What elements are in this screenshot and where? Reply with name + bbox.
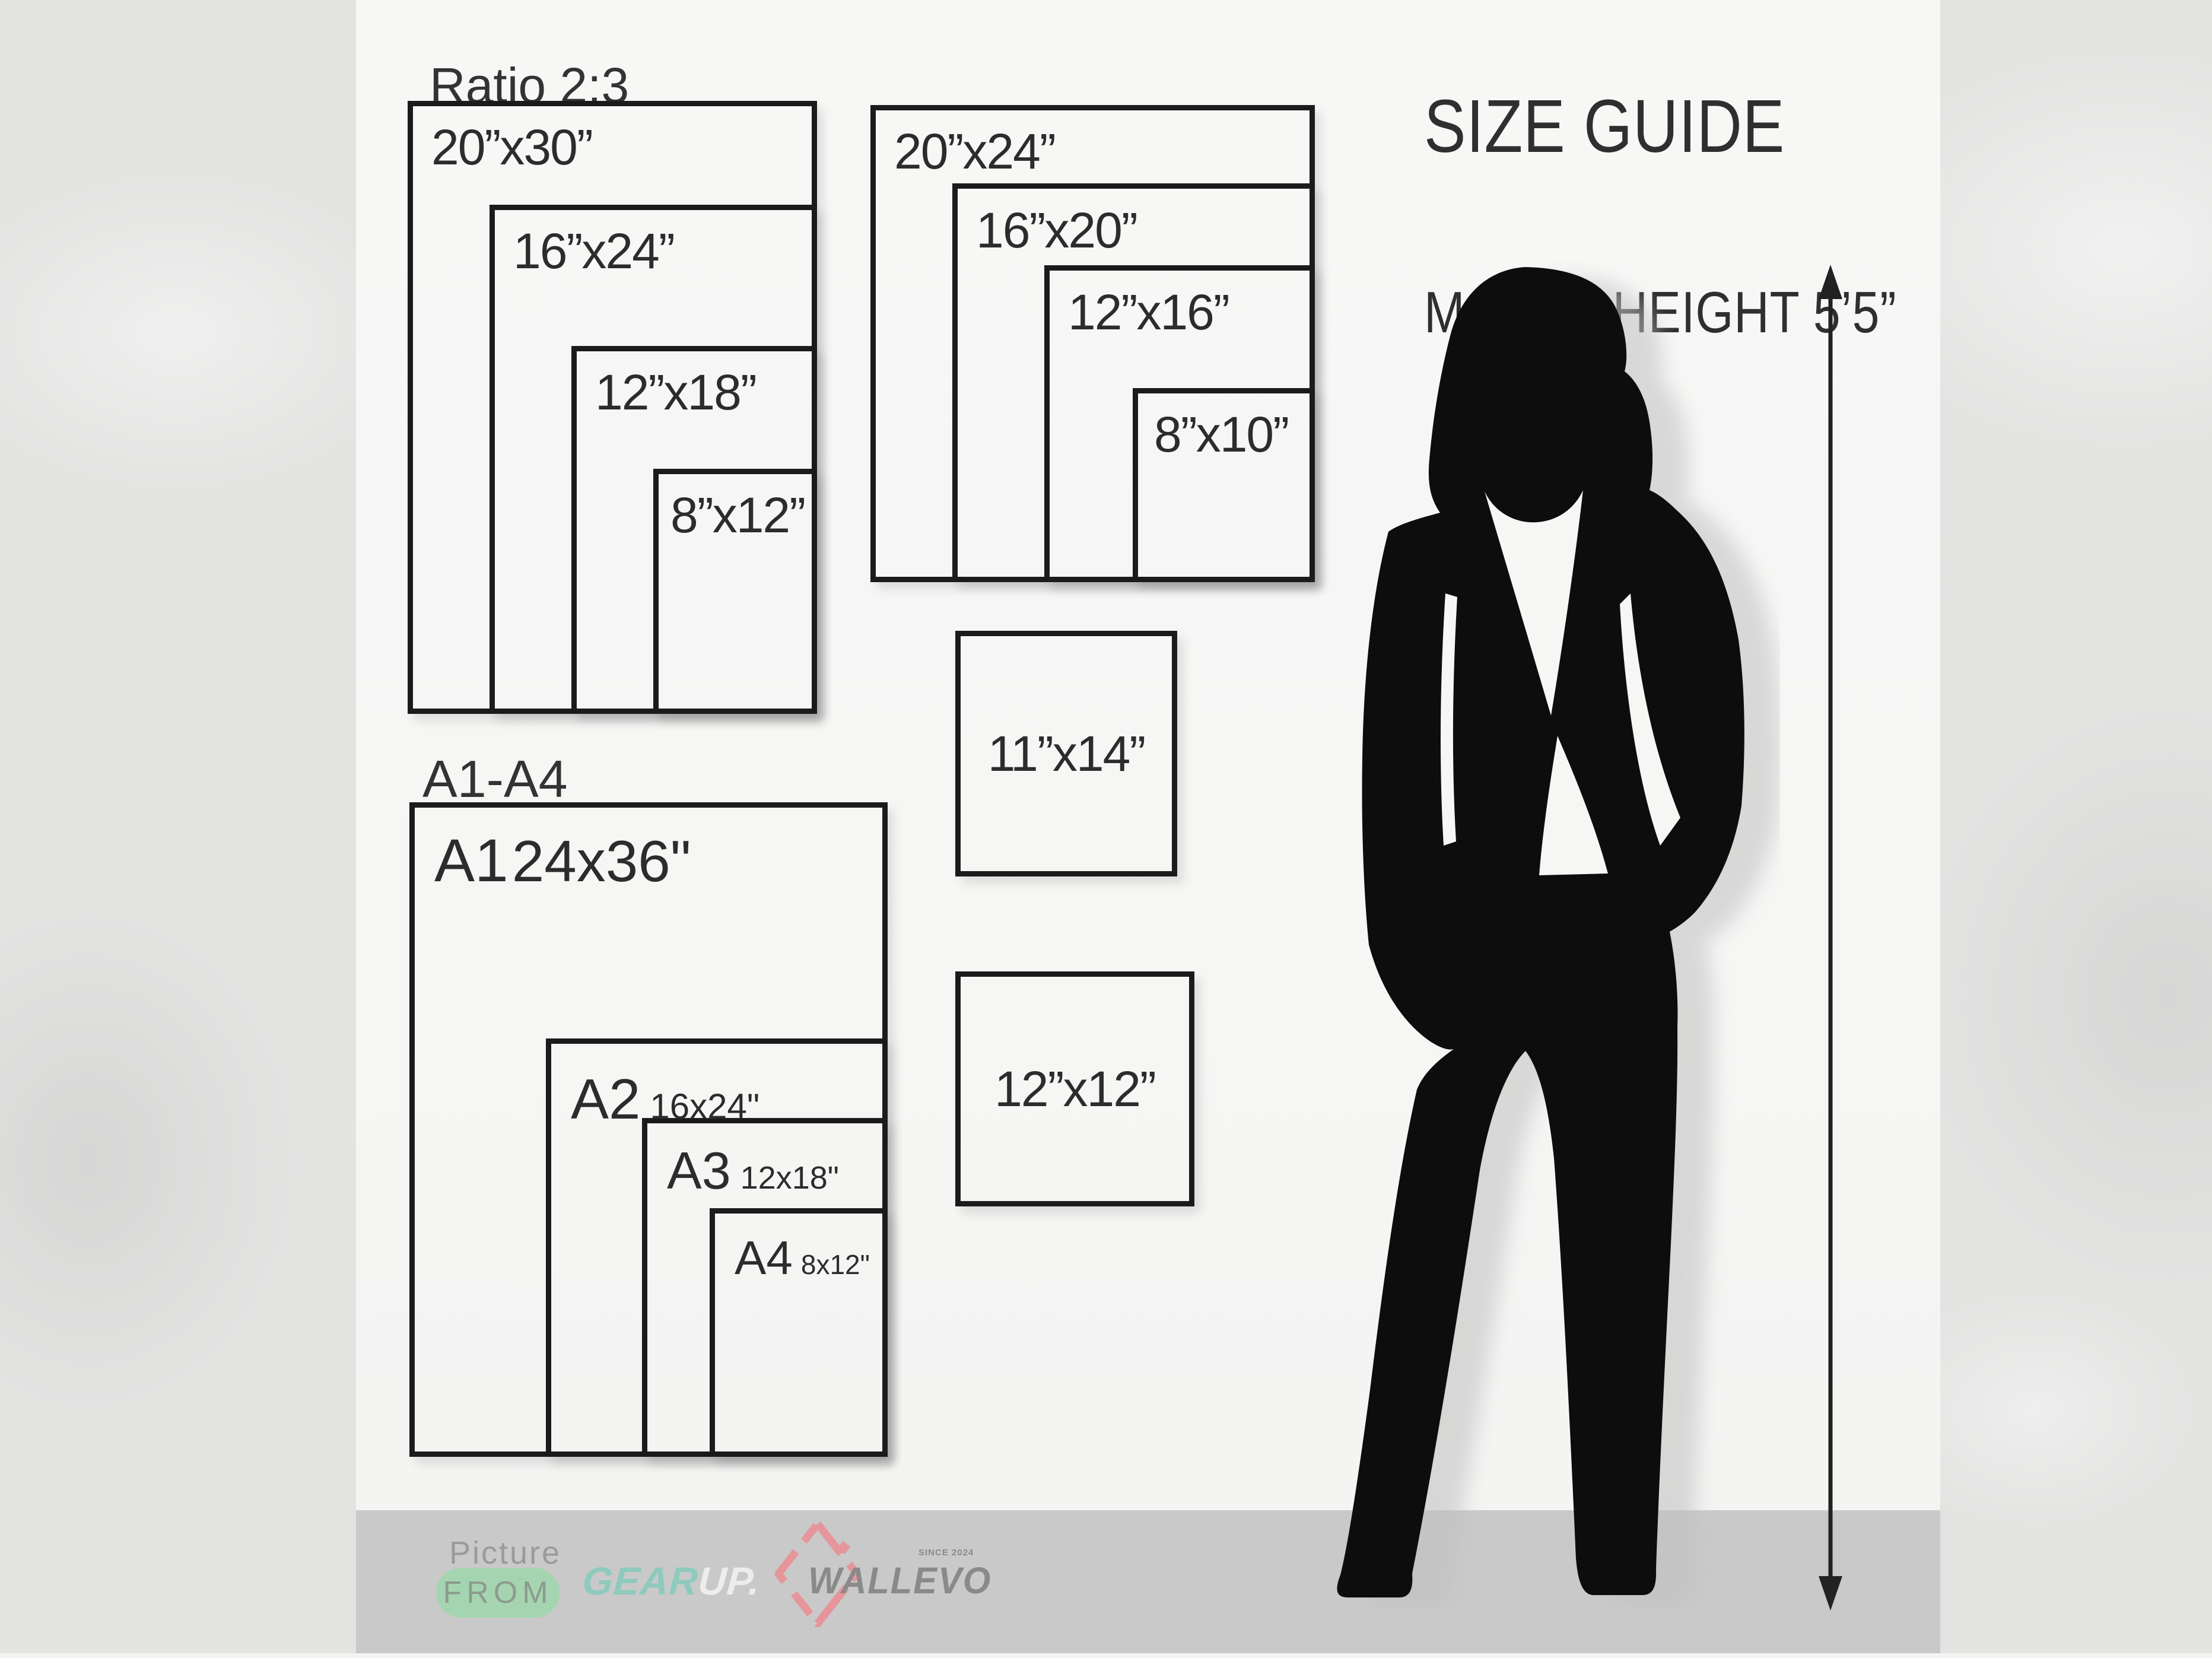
gearup-logo: GEARUP. — [581, 1558, 762, 1603]
a-size-name: A1 — [434, 827, 508, 894]
a-size-row: A216x24" — [571, 1067, 759, 1132]
bottom-band — [0, 1653, 2212, 1658]
size-label: 12”x16” — [1068, 284, 1229, 341]
a-size-value: 12x18" — [740, 1160, 839, 1196]
height-double-arrow-icon — [1804, 261, 1857, 1614]
size-label: 12”x18” — [595, 364, 756, 421]
size-label: 11”x14” — [988, 725, 1145, 783]
a-size-value: 24x36" — [512, 828, 691, 894]
picture-label: Picture — [449, 1535, 561, 1571]
size-guide-infographic: Ratio 2:3 20”x30” 16”x24” 12”x18” 8”x12”… — [0, 0, 2212, 1658]
a-size-row: A124x36" — [434, 826, 691, 895]
size-label: 20”x24” — [894, 123, 1055, 180]
size-box: 12”x12” — [955, 971, 1194, 1206]
a-series-title: A1-A4 — [422, 749, 568, 809]
size-box: 11”x14” — [955, 631, 1177, 876]
a-size-name: A3 — [667, 1141, 731, 1200]
gearup-logo-gear: GEAR — [581, 1559, 700, 1603]
size-label: 8”x12” — [670, 487, 805, 544]
a-size-row: A312x18" — [667, 1141, 839, 1201]
page-title: SIZE GUIDE — [1424, 83, 1785, 169]
size-label: 20”x30” — [431, 119, 592, 176]
a-size-name: A4 — [735, 1231, 793, 1284]
gearup-logo-up: UP. — [697, 1559, 762, 1603]
size-label: 16”x24” — [513, 223, 674, 280]
a-size-value: 8x12" — [801, 1249, 870, 1280]
a-size-row: A48x12" — [735, 1231, 870, 1285]
size-label: 8”x10” — [1154, 406, 1288, 463]
size-label: 12”x12” — [994, 1060, 1155, 1118]
since-label: SINCE 2024 — [919, 1548, 974, 1558]
size-label: 16”x20” — [976, 202, 1137, 259]
from-badge: FROM — [436, 1568, 560, 1618]
model-silhouette — [1329, 261, 1780, 1608]
from-label: FROM — [443, 1575, 552, 1611]
a-size-value: 16x24" — [650, 1087, 759, 1126]
wallevo-logo: WALLEVO — [808, 1559, 991, 1602]
a-size-name: A2 — [571, 1068, 640, 1131]
